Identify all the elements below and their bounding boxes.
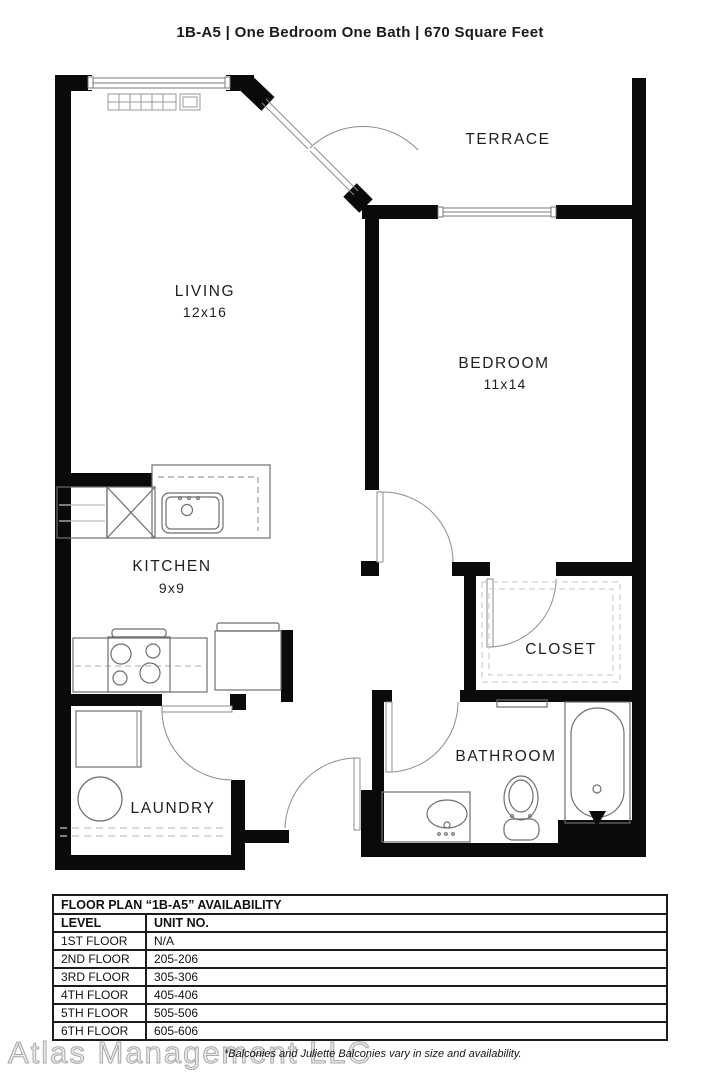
table-row: 1ST FLOOR N/A (53, 932, 667, 950)
kitchen-label: KITCHEN (132, 558, 211, 575)
toilet-icon (504, 776, 539, 840)
closet-label: CLOSET (525, 641, 597, 658)
wall-living-bedroom (365, 205, 379, 490)
wall-kitchen-right (281, 630, 293, 702)
table-title: FLOOR PLAN “1B-A5” AVAILABILITY (53, 895, 667, 914)
table-header-row: LEVEL UNIT NO. (53, 914, 667, 932)
column-header-level: LEVEL (53, 914, 146, 932)
kitchen-sink-icon (162, 493, 223, 533)
bathroom-label: BATHROOM (455, 748, 556, 765)
footnote: *Balconies and Juliette Balconies vary i… (224, 1048, 522, 1060)
floor-plan-page: 1B-A5 | One Bedroom One Bath | 670 Squar… (0, 0, 720, 1080)
wall-kitchen-top (55, 473, 152, 487)
wall-diagonal-a (246, 83, 268, 104)
terrace-french-door (262, 99, 418, 195)
wall-laundry-bottom (55, 855, 245, 870)
floor-plan-drawing: TERRACE LIVING 12x16 BEDROOM 11x14 KITCH… (0, 0, 720, 890)
bathroom-door-arc (392, 702, 458, 772)
bedroom-label: BEDROOM (458, 355, 549, 372)
wall-diagonal-b (350, 190, 366, 206)
living-dim: 12x16 (183, 304, 227, 320)
laundry-door (162, 706, 232, 780)
dryer-icon (76, 711, 141, 767)
wall-bedroom-top-right (556, 205, 632, 219)
wall-top-left (55, 75, 92, 91)
bedroom-door (377, 492, 453, 562)
wall-closet-left (464, 576, 476, 690)
bedroom-window (438, 206, 556, 218)
walls (55, 75, 646, 870)
wall-bedroom-bottom-right (556, 562, 632, 576)
kitchen-lower-counter (73, 638, 207, 692)
bedroom-door-arc (383, 492, 453, 562)
wall-left (55, 75, 71, 870)
bathroom-door (386, 702, 458, 772)
wall-bath-top-left (372, 690, 392, 702)
wall-right (632, 78, 646, 857)
laundry-door-arc (162, 712, 232, 780)
bathtub-icon (565, 702, 630, 827)
living-fixtures (108, 94, 200, 110)
table-row: 3RD FLOOR 305-306 (53, 968, 667, 986)
terrace-label: TERRACE (465, 131, 550, 148)
fridge-icon (215, 623, 281, 690)
terrace-door-arc (310, 126, 418, 150)
table-row: 5TH FLOOR 505-506 (53, 1004, 667, 1022)
wall-living-bedroom-foot (361, 561, 379, 576)
column-header-unit: UNIT NO. (146, 914, 667, 932)
washer-icon (78, 777, 122, 821)
wall-kitchen-bottom (55, 694, 162, 706)
living-label: LIVING (175, 283, 235, 300)
living-window (88, 76, 230, 90)
heater-grille-icon (108, 94, 200, 110)
vanity-sink-icon (382, 792, 470, 842)
kitchen-dim: 9x9 (159, 580, 185, 596)
availability-table: FLOOR PLAN “1B-A5” AVAILABILITY LEVEL UN… (52, 894, 668, 1041)
kitchen-counter (152, 465, 270, 538)
room-labels: TERRACE LIVING 12x16 BEDROOM 11x14 KITCH… (131, 131, 597, 817)
wall-bedroom-bottom-left (452, 562, 490, 576)
wall-entry-stub (245, 830, 289, 843)
table-title-row: FLOOR PLAN “1B-A5” AVAILABILITY (53, 895, 667, 914)
bedroom-dim: 11x14 (483, 376, 526, 392)
entry-door (285, 758, 360, 830)
closet-shelving (482, 582, 620, 682)
kitchen-fixtures (57, 465, 281, 692)
table-row: 2ND FLOOR 205-206 (53, 950, 667, 968)
wall-bath-bottom (361, 843, 646, 857)
laundry-label: LAUNDRY (131, 800, 216, 817)
table-row: 4TH FLOOR 405-406 (53, 986, 667, 1004)
entry-door-arc (285, 758, 354, 828)
dishwasher-icon (107, 487, 155, 538)
